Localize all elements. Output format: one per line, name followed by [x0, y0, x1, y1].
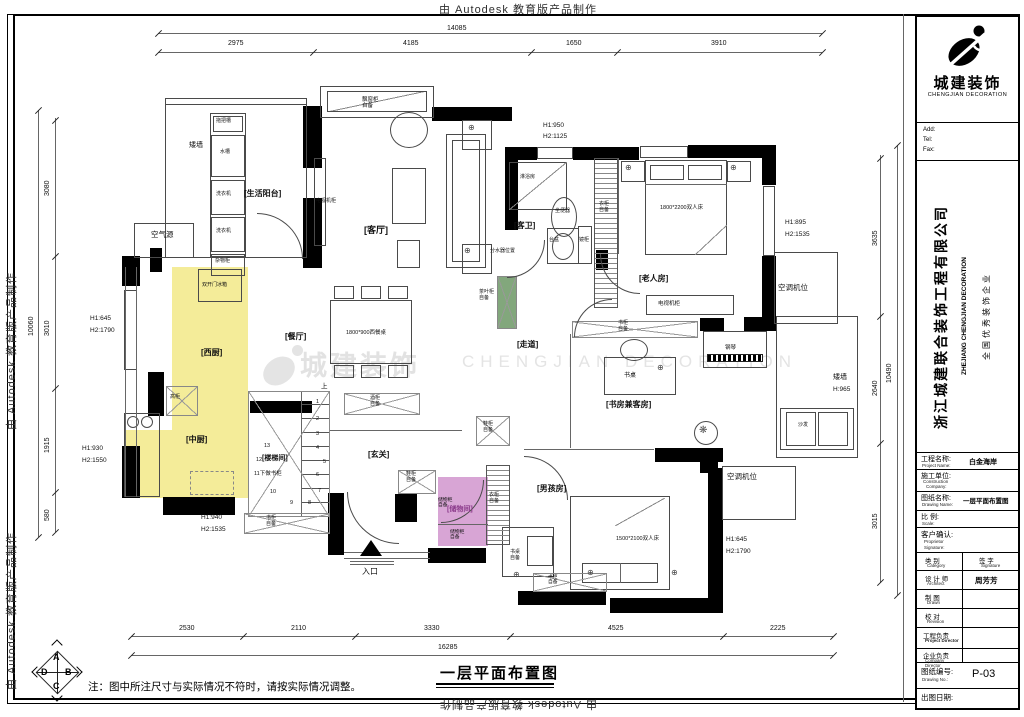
plan-annotation: 洗衣机: [216, 229, 231, 235]
divider: [917, 160, 1018, 161]
plan-annotation: 镜柜: [579, 238, 589, 244]
plan-annotation: 书柜 自备: [618, 321, 628, 332]
compass-chevron-down: [51, 690, 62, 701]
plan-wall: [518, 591, 606, 605]
plan-annotation: 7: [318, 488, 321, 494]
plan-wall: [328, 493, 344, 555]
plan-e: [141, 416, 153, 428]
room-label-balcony: [生活阳台]: [244, 190, 281, 199]
plan-annotation: 洗衣机: [216, 192, 231, 198]
plan-r: [688, 165, 722, 180]
plan-annotation: H1:645: [726, 536, 747, 543]
address-label: Add:: [923, 127, 935, 133]
title-underline: [436, 683, 554, 685]
plan-line: [645, 184, 727, 185]
plan-annotation: 矮墙: [833, 374, 847, 382]
scale-label-en: Scale:: [922, 521, 935, 526]
dim-label: 2110: [291, 625, 306, 633]
entry-arrow: [360, 540, 382, 556]
plan-line: [158, 52, 822, 53]
plan-annotation: 衣柜 自备: [489, 493, 499, 504]
plan-annotation: 钢琴: [725, 345, 736, 351]
room-label-elder: [老人房]: [639, 275, 668, 284]
divider: [917, 16, 1018, 17]
plan-wall: [700, 318, 724, 331]
room-label-dining: [餐厅]: [285, 333, 306, 342]
plan-wall: [744, 317, 777, 331]
dim-label: 3010: [44, 320, 52, 336]
dim-label: 2225: [770, 625, 786, 633]
window: [763, 186, 775, 256]
plan-line: [131, 655, 833, 656]
orientation-compass: A B C D: [20, 642, 98, 706]
dim-label: 580: [44, 509, 52, 521]
divider: [917, 491, 1018, 492]
dim-label: 10490: [886, 364, 894, 383]
row-line: [917, 648, 1018, 649]
ceiling-light-icon: ⊕: [730, 164, 737, 173]
plan-annotation: 鞋柜 自备: [406, 472, 416, 483]
ceiling-light-icon: ⊕: [513, 571, 520, 580]
drawing-label-en: Drawing Name:: [922, 502, 953, 507]
frame-divider: [903, 14, 904, 702]
plan-annotation: 杂物柜: [215, 259, 230, 265]
plan-r: [361, 286, 381, 299]
plan-r: [818, 412, 848, 446]
ceiling-light-icon: ⊕: [468, 124, 475, 133]
row-project-director-en: Project Director: [925, 638, 961, 643]
plan-line: [131, 636, 833, 637]
plan-wall: [700, 451, 718, 473]
bookcase-under-stairs: [244, 513, 330, 534]
watermark-logo-dot: [292, 345, 303, 356]
ceiling-light-icon: ⊕: [657, 364, 664, 373]
room-label-main-kitchen: [中厨]: [186, 436, 207, 445]
plan-r: [334, 365, 354, 378]
shoe-cabinet-2: [398, 470, 436, 494]
plan-annotation: 拖把槽: [216, 119, 231, 125]
plan-line: [438, 524, 488, 525]
watermark-autodesk-left-2: 由 Autodesk 教育版产品制作: [3, 532, 19, 690]
plan-annotation: 书柜 自备: [266, 516, 276, 527]
dim-label: 3910: [711, 40, 727, 48]
plan-annotation: 9: [290, 500, 293, 506]
plan-r: [361, 365, 381, 378]
tel-label: Tel:: [923, 137, 932, 143]
plan-line: [330, 430, 462, 431]
plan-line: [350, 564, 394, 565]
dim-label: 2530: [179, 625, 195, 633]
room-label-boys: [男孩房]: [537, 485, 566, 494]
plan-annotation: 入口: [362, 568, 378, 577]
company-name-en: ZHEJIANG CHENGJIAN DECORATION: [961, 196, 968, 436]
plan-annotation: 坐便器: [555, 209, 570, 215]
title-underline-2: [436, 687, 554, 688]
bookcase-boy: [533, 573, 607, 592]
plan-x: [248, 391, 330, 517]
drawing-no-en: Drawing No.:: [922, 677, 948, 682]
wine-cabinet: [344, 393, 420, 415]
divider: [917, 688, 1018, 689]
plan-line: [136, 267, 137, 497]
plan-annotation: 1500*2100双人床: [616, 536, 659, 542]
plan-annotation: 水槽: [220, 150, 230, 156]
plan-line: [620, 563, 621, 583]
drawing-no-label: 图纸编号:: [921, 666, 953, 677]
plan-annotation: 4: [316, 445, 319, 451]
plan-annotation: H2:1790: [90, 327, 115, 334]
plan-line: [158, 33, 822, 34]
plan-annotation: 酒柜 自备: [370, 396, 380, 407]
plan-line: [524, 449, 654, 450]
plan-r: [650, 165, 684, 180]
plan-annotation: H2:1535: [201, 526, 226, 533]
project-value: 白金海岸: [969, 457, 997, 467]
title-block: 城建装饰 CHENGJIAN DECORATION Add: Tel: Fax:…: [915, 14, 1020, 710]
room-label-living: [客厅]: [364, 225, 388, 235]
cooktop: [190, 471, 234, 495]
plan-e: [620, 339, 648, 361]
plan-annotation: 高柜: [170, 395, 180, 401]
dim-label: 16285: [438, 644, 457, 652]
plan-r: [462, 120, 492, 150]
plan-annotation: 2: [316, 416, 319, 422]
plan-line: [570, 334, 571, 448]
plan-annotation: 1800*2200双人床: [660, 205, 703, 211]
dim-label: 4525: [608, 625, 624, 633]
watermark-autodesk-top: 由 Autodesk 教育版产品制作: [428, 1, 608, 17]
plan-annotation: 10: [270, 489, 276, 495]
plan-annotation: 12: [256, 457, 262, 463]
plan-wall: [432, 107, 512, 121]
room-label-guest-bath: [客卫]: [514, 222, 535, 231]
ceiling-light-icon: ⊕: [625, 164, 632, 173]
plan-wall: [148, 372, 164, 416]
plan-line: [618, 158, 619, 254]
plan-annotation: 书柜 自备: [548, 575, 558, 586]
plan-annotation: 8: [308, 500, 311, 506]
table-divider: [962, 552, 963, 662]
plan-line: [897, 145, 898, 595]
plan-annotation: 空气源: [151, 231, 174, 239]
plan-d1: [615, 498, 665, 526]
piano-keys: [707, 354, 763, 362]
divider: [917, 469, 1018, 470]
company-honor: 全国优秀装饰企业: [981, 206, 992, 426]
plan-r: [397, 240, 420, 268]
air-source-box: [134, 223, 194, 258]
dim-label: 14085: [447, 25, 466, 33]
plan-annotation: 双开门冰箱: [202, 283, 227, 289]
plan-annotation: H1:950: [543, 122, 564, 129]
architect-signature: 周芳芳: [975, 575, 998, 586]
dim-label: 1650: [566, 40, 582, 48]
dim-label: 3330: [424, 625, 440, 633]
plan-annotation: 空调机位: [727, 473, 757, 481]
wardrobe-boy: [486, 465, 510, 545]
plan-annotation: 3: [316, 431, 319, 437]
brand-name: 城建装饰: [917, 72, 1018, 93]
plan-r: [786, 412, 816, 446]
dim-label: 1915: [44, 437, 52, 453]
plan-annotation: 11下做书柜: [254, 471, 282, 477]
sheet-note: 注：图中所注尺寸与实际情况不符时，请按实际情况调整。: [88, 679, 361, 694]
plan-annotation: 6: [316, 472, 319, 478]
room-label-stairs: [楼梯间]: [262, 455, 288, 463]
plan-annotation: 上: [321, 383, 328, 390]
plan-annotation: 飘窗柜 自备: [362, 97, 379, 109]
col-category-en: Category: [927, 563, 945, 568]
armchair: [390, 112, 428, 148]
plan-annotation: 储物柜 自备: [450, 530, 464, 541]
dim-label: 3080: [44, 180, 52, 196]
plan-annotation: 5: [323, 459, 326, 465]
col-sign-en: Signature: [981, 563, 1000, 568]
window: [537, 147, 573, 159]
divider: [917, 122, 1018, 123]
compass-a: A: [53, 652, 60, 662]
date-label: 出图日期:: [921, 692, 953, 703]
fan-icon: ❋: [699, 425, 707, 436]
plan-annotation: 13: [264, 443, 270, 449]
ceiling-light-icon: ⊕: [464, 247, 471, 256]
plan-annotation: 鞋柜 自备: [483, 422, 493, 433]
mirror-cabinet: [578, 226, 592, 264]
divider: [917, 452, 1018, 453]
plan-annotation: H1:645: [90, 315, 111, 322]
room-label-study: [书房兼客房]: [606, 401, 651, 410]
plan-annotation: H2:1550: [82, 457, 107, 464]
row-line: [917, 570, 1018, 571]
plan-annotation: 书桌: [624, 373, 636, 380]
plan-r: [388, 365, 408, 378]
plan-annotation: 空调机位: [778, 284, 808, 292]
row-revision-en: Revision: [927, 619, 944, 624]
compass-chevron-up: [51, 639, 62, 650]
watermark-autodesk-left-1: 由 Autodesk 教育版产品制作: [3, 272, 19, 430]
coffee-table: [392, 168, 426, 224]
plan-annotation: H1:895: [785, 219, 806, 226]
project-label-en: Project Name:: [922, 463, 951, 468]
plan-wall: [610, 598, 723, 613]
plan-annotation: 淋浴房: [520, 175, 535, 181]
divider: [917, 510, 1018, 511]
desk-study: [604, 357, 676, 395]
dim-label: 10060: [28, 317, 36, 336]
divider: [917, 527, 1018, 528]
plan-line: [350, 561, 394, 562]
row-line: [917, 608, 1018, 609]
dim-label: 3635: [872, 230, 880, 246]
plan-r: [388, 286, 408, 299]
plan-wall: [762, 145, 776, 185]
drawing-value: 一层平面布置图: [963, 495, 1009, 505]
row-architect-en: Architect: [927, 581, 945, 586]
room-label-west-kitchen: [西厨]: [201, 349, 222, 358]
plan-d1: [695, 225, 727, 255]
plan-line: [38, 110, 39, 537]
window: [640, 146, 688, 158]
plan-x: [497, 276, 517, 329]
plan-e: [127, 416, 139, 428]
plan-annotation: 衣柜 自备: [599, 202, 609, 213]
tall-cabinet: [166, 386, 198, 416]
plan-annotation: 茶叶柜 自备: [479, 290, 494, 301]
plan-annotation: 沙发: [798, 423, 808, 429]
plan-r: [334, 286, 354, 299]
confirm-label-en2: Signature:: [924, 545, 945, 550]
balcony-window: [165, 98, 307, 105]
plan-annotation: H1:940: [201, 514, 222, 521]
row-line: [917, 627, 1018, 628]
floor-plan-sheet: 由 Autodesk 教育版产品制作 由 Autodesk 教育版产品制作 由 …: [0, 0, 1024, 717]
fax-label: Fax:: [923, 147, 935, 153]
dim-label: 2640: [872, 380, 880, 396]
dim-label: 3015: [872, 513, 880, 529]
plan-line: [344, 558, 430, 559]
ceiling-light-icon: ⊕: [587, 569, 594, 578]
brand-name-en: CHENGJIAN DECORATION: [917, 92, 1018, 98]
row-line: [917, 589, 1018, 590]
plan-wall: [163, 497, 235, 515]
plan-annotation: 电视机柜: [658, 301, 680, 307]
plan-annotation: 1800*900西餐桌: [346, 330, 386, 336]
plan-annotation: 分水器位置: [490, 249, 515, 255]
plan-annotation: 1: [316, 399, 319, 405]
plan-annotation: H:965: [833, 386, 850, 393]
plan-annotation: 电视机柜: [316, 199, 336, 205]
confirm-label-en1: Proprietor: [924, 539, 944, 544]
drawing-no-value: P-03: [972, 668, 995, 680]
plan-wall: [428, 548, 486, 563]
dim-label: 2975: [228, 40, 244, 48]
plan-annotation: H1:930: [82, 445, 103, 452]
row-drawn-en: Drawn: [927, 600, 940, 605]
plan-r: [527, 536, 553, 566]
plan-line: [344, 552, 430, 553]
plan-line: [125, 267, 126, 497]
construction-label-en2: Company:: [926, 484, 947, 489]
plan-r: [211, 135, 245, 177]
plan-wall: [708, 468, 723, 598]
dim-label: 4185: [403, 40, 419, 48]
sheet-title: 一层平面布置图: [440, 662, 559, 683]
plan-line: [880, 155, 881, 583]
divider: [917, 662, 1018, 663]
company-name: 浙江城建联合装饰工程有限公司: [931, 182, 951, 452]
plan-annotation: 书桌 自备: [510, 550, 520, 561]
plan-annotation: H2:1125: [543, 133, 567, 140]
divider: [917, 552, 1018, 553]
room-label-corridor: [走道]: [517, 341, 538, 350]
plan-annotation: 储物柜 自备: [438, 498, 452, 509]
room-label-foyer: [玄关]: [368, 451, 389, 460]
plan-annotation: H2:1790: [726, 548, 751, 555]
plan-annotation: 台盆: [549, 238, 559, 244]
ceiling-light-icon: ⊕: [671, 569, 678, 578]
watermark-autodesk-bottom: 由 Autodesk 教育版产品制作: [428, 697, 608, 713]
plan-line: [55, 118, 56, 532]
plan-annotation: H2:1535: [785, 231, 810, 238]
plan-annotation: 矮墙: [189, 142, 203, 150]
